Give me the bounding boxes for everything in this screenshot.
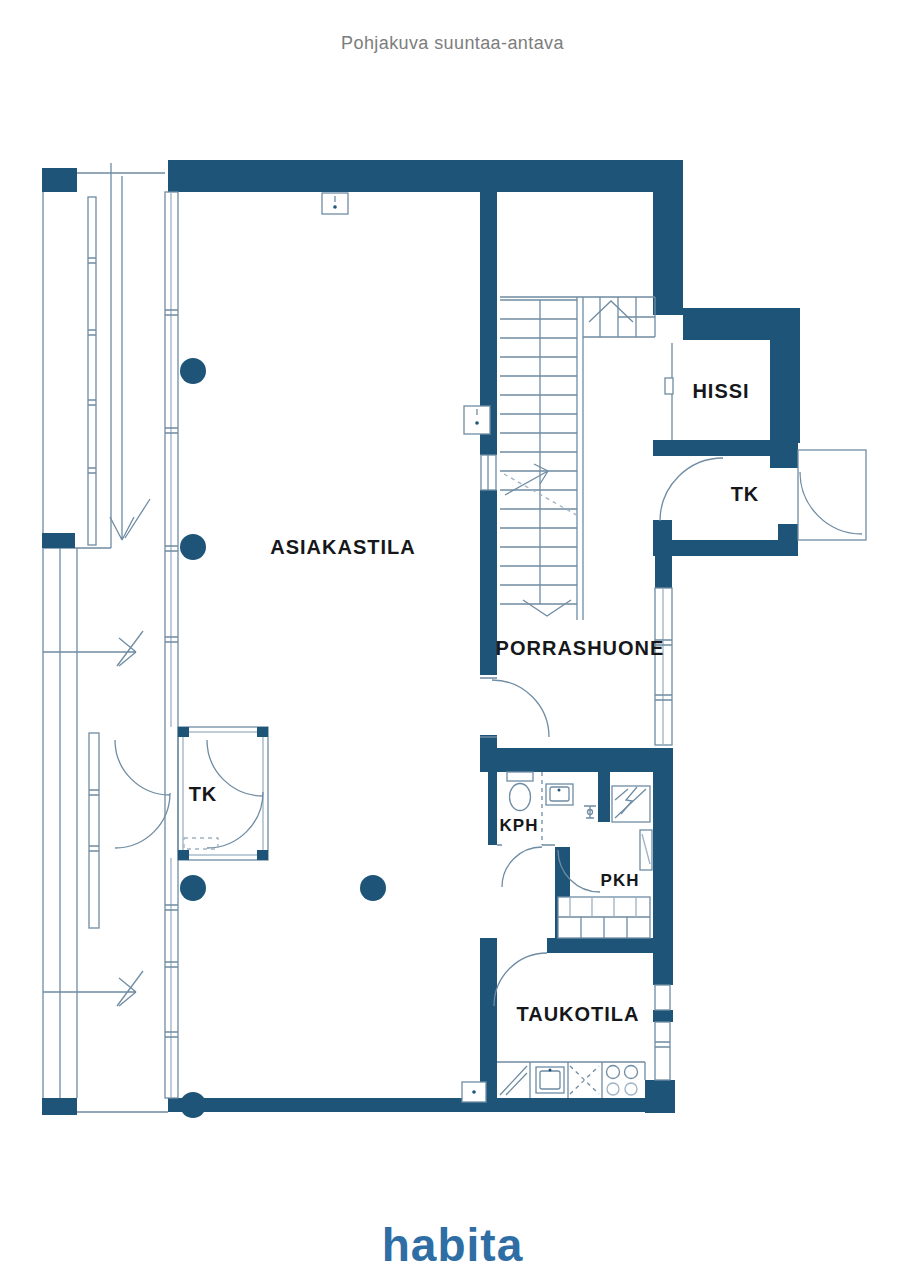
tk-entry-door-swing: [660, 458, 723, 521]
wall-stair-right-upper: [655, 556, 672, 590]
wall-top: [168, 160, 683, 192]
kitchen-sink-icon: [536, 1067, 564, 1093]
label-hissi: HISSI: [692, 380, 749, 402]
floorplan-page: Pohjakuva suuntaa-antava: [0, 0, 905, 1280]
wall-tk-bottom: [655, 540, 798, 556]
label-taukotila: TAUKOTILA: [516, 1003, 639, 1025]
habita-logo: habita: [0, 1218, 905, 1272]
electrical-panel-icon: [612, 786, 650, 822]
porrashuone-right-window: [655, 588, 672, 745]
taukotila-door-swing: [494, 953, 547, 1006]
stove-icon: [607, 1066, 638, 1096]
wall-kph-left: [488, 772, 497, 845]
floorplan-drawing: ASIAKASTILA PORRASHUONE HISSI TK TK KPH …: [0, 0, 905, 1280]
walkway-window-upper: [88, 197, 96, 545]
entrance-arrow-upper-icon: [43, 631, 143, 666]
taukotila-right-window-b: [655, 1022, 670, 1080]
stairs-down-arrow-icon: [523, 600, 571, 616]
label-kph: KPH: [500, 816, 539, 835]
wall-bottom-right-corner: [645, 1080, 675, 1113]
room-labels: ASIAKASTILA PORRASHUONE HISSI TK TK KPH …: [189, 380, 760, 1025]
wall-taukotila-top: [547, 938, 653, 953]
wall-walkway-block-mid: [42, 533, 75, 548]
dishwasher-icon: [570, 1066, 599, 1094]
facade-window-wall: [165, 192, 178, 1098]
label-asiakastila: ASIAKASTILA: [270, 536, 415, 558]
wall-upper-right: [653, 192, 683, 315]
wall-box-stair-icon: [464, 406, 490, 434]
walls: [42, 160, 800, 1115]
pkh-shelving-icon: [558, 897, 650, 938]
label-pkh: PKH: [601, 871, 640, 890]
wall-taukotila-right-b: [653, 1010, 673, 1022]
kitchen-counter: [497, 1062, 645, 1098]
stairs-upper-flight: [583, 297, 655, 337]
kph-door-swing: [502, 847, 542, 887]
stairs-up-arrow-icon: [589, 301, 633, 322]
pkh-mirror-cabinet-icon: [640, 830, 652, 870]
wall-stair-left-mid: [480, 490, 497, 675]
column-icon: [180, 875, 206, 901]
hissi-door: [665, 343, 673, 440]
stairs: [500, 297, 655, 620]
label-tk-vestibule: TK: [189, 783, 218, 805]
fridge-icon: [500, 1066, 527, 1095]
walkway-window-lower: [89, 733, 99, 928]
exterior-walkway: [43, 163, 168, 1112]
porrashuone-door-swing: [492, 680, 549, 737]
column-markers: [180, 358, 386, 1118]
entrance-arrow-lower-icon: [43, 971, 143, 1006]
faucet-icon: [584, 806, 596, 818]
label-porrashuone: PORRASHUONE: [496, 637, 665, 659]
vestibule-outer-door-swing-b: [115, 793, 170, 848]
exterior-entry-door: [798, 450, 866, 540]
sink-icon: [546, 784, 573, 805]
wall-box-top-icon: [322, 193, 348, 214]
vestibule-outer-door-swing-a: [115, 740, 170, 795]
wall-bottom: [168, 1098, 645, 1112]
wall-pkh-right: [653, 772, 673, 948]
wall-hissi-right: [770, 340, 800, 443]
walkway-direction-arrow-icon: [110, 176, 150, 540]
stairwell-left-window: [481, 455, 496, 490]
wall-hissi-top: [683, 308, 800, 340]
toilet-icon: [507, 772, 533, 811]
label-tk-entry: TK: [731, 483, 760, 505]
taukotila-right-window-a: [655, 985, 670, 1010]
wall-kph-top: [480, 748, 673, 772]
column-icon: [180, 1092, 206, 1118]
wall-kph-closet-separator: [598, 772, 610, 822]
wall-hissi-tk-separator: [653, 440, 790, 456]
wall-box-bottom-icon: [462, 1082, 486, 1102]
wall-walkway-block-top: [42, 168, 77, 192]
column-icon: [180, 358, 206, 384]
column-icon: [360, 875, 386, 901]
wall-taukotila-right-a: [653, 948, 673, 985]
column-icon: [180, 534, 206, 560]
wall-walkway-block-bottom: [42, 1098, 77, 1115]
